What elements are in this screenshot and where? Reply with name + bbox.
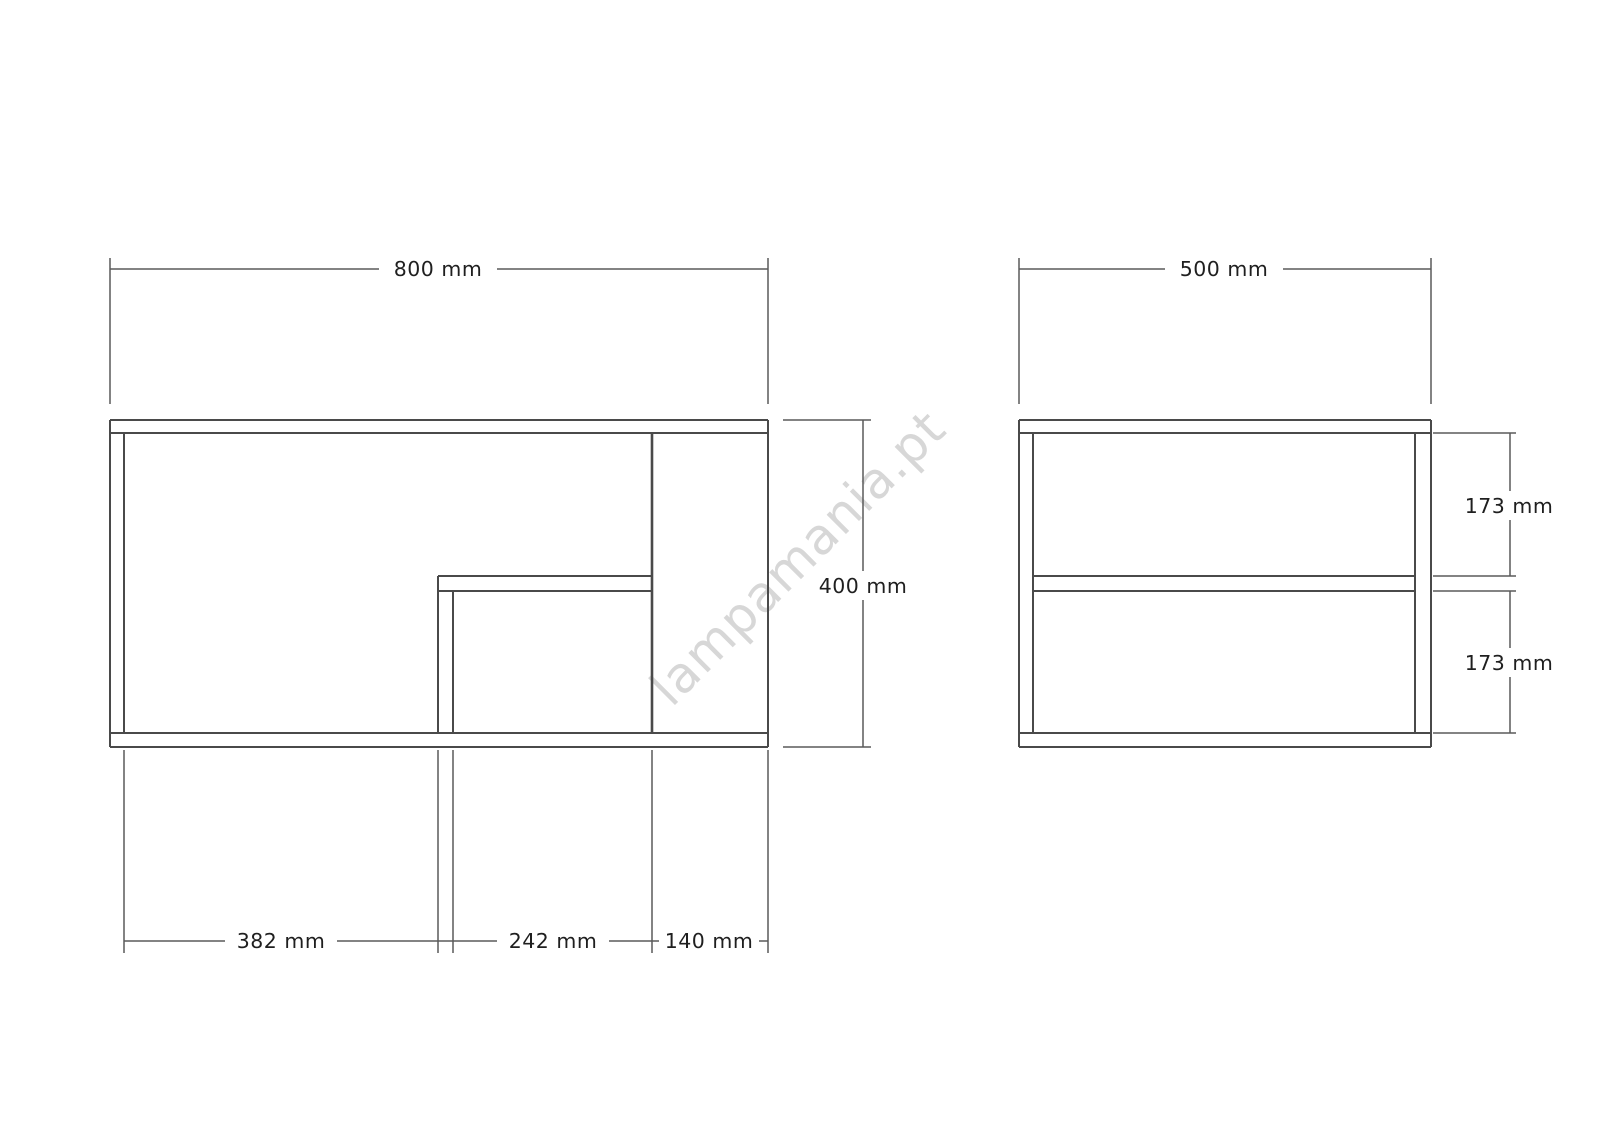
side-width-label: 500 mm [1180, 257, 1269, 281]
side-width-dimension: 500 mm [1019, 255, 1431, 404]
side-lower-gap-label: 173 mm [1465, 651, 1554, 675]
technical-drawing-canvas: lampamania.pt 800 mm [0, 0, 1600, 1131]
side-upper-gap-label: 173 mm [1465, 494, 1554, 518]
front-width-label: 800 mm [394, 257, 483, 281]
front-height-label: 400 mm [819, 574, 908, 598]
side-gap-dimensions: 173 mm 173 mm [1433, 433, 1570, 733]
side-view [1019, 420, 1431, 747]
front-bottom-right-label: 140 mm [665, 929, 754, 953]
front-bottom-left-label: 382 mm [237, 929, 326, 953]
front-width-dimension: 800 mm [110, 255, 768, 404]
watermark-text: lampamania.pt [639, 399, 957, 717]
front-bottom-dimensions: 382 mm 242 mm 140 mm [124, 750, 768, 955]
front-bottom-middle-label: 242 mm [509, 929, 598, 953]
